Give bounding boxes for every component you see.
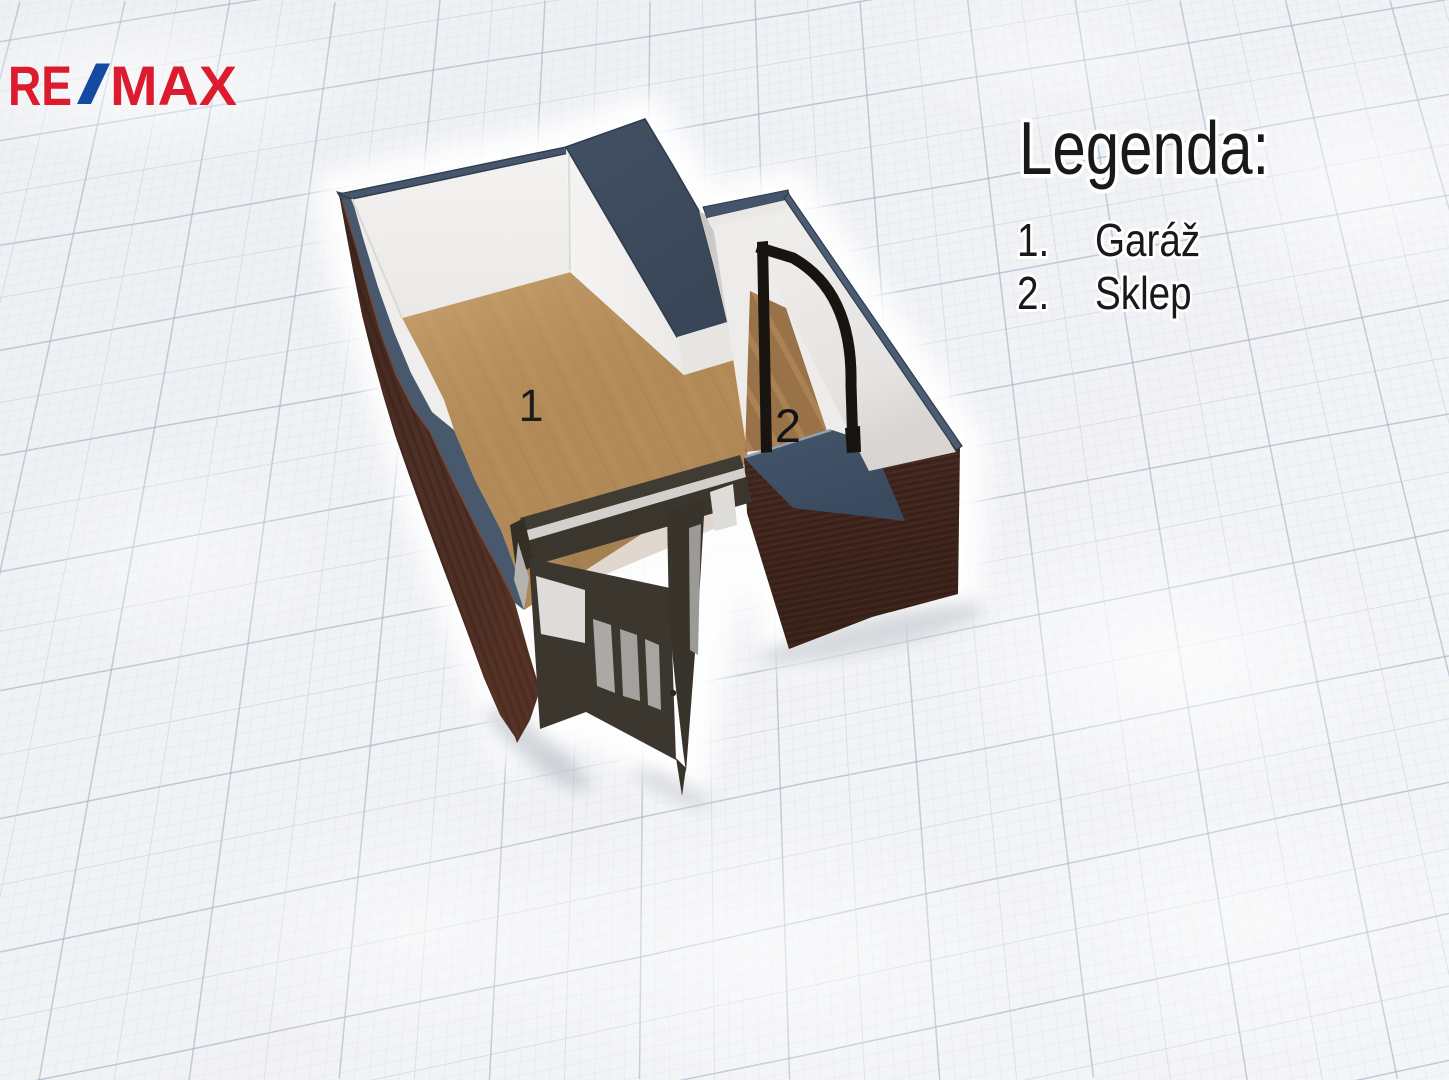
svg-text:Garáž: Garáž bbox=[1095, 215, 1200, 266]
svg-text:Legenda:: Legenda: bbox=[1019, 108, 1269, 191]
svg-text:1.: 1. bbox=[1017, 215, 1049, 266]
svg-text:2: 2 bbox=[775, 399, 801, 452]
svg-text:MAX: MAX bbox=[110, 54, 237, 117]
svg-text:RE: RE bbox=[8, 54, 72, 117]
svg-text:Sklep: Sklep bbox=[1095, 268, 1192, 319]
svg-text:2.: 2. bbox=[1017, 268, 1049, 319]
svg-text:1: 1 bbox=[518, 380, 543, 431]
